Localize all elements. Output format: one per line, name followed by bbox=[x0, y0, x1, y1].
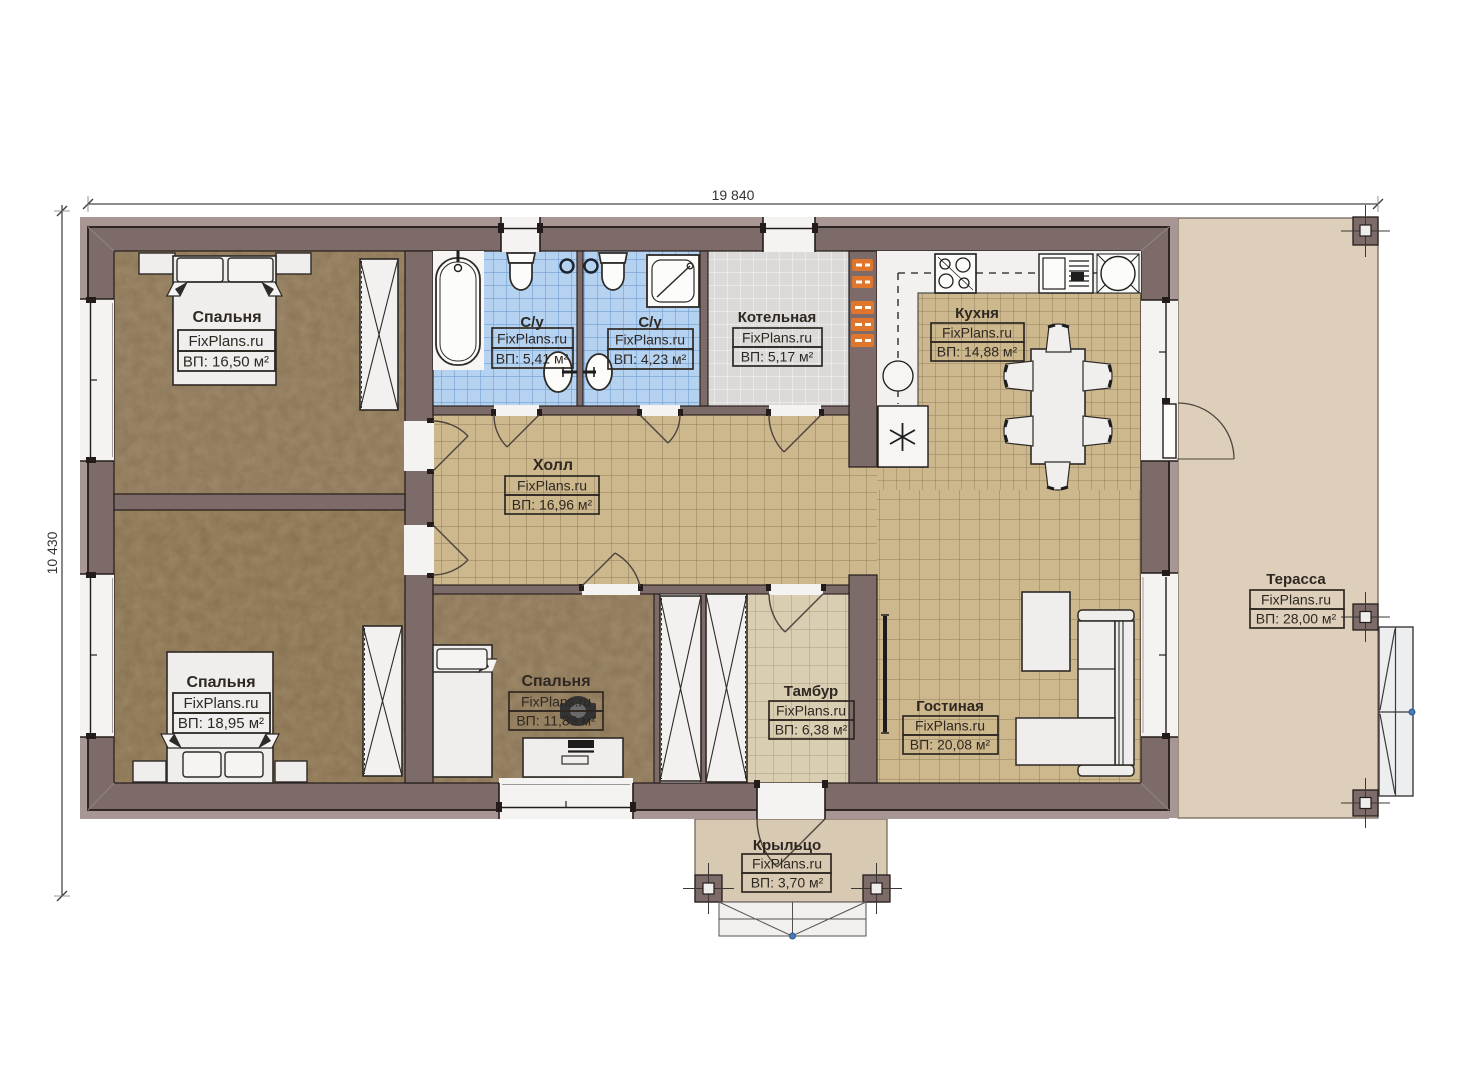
svg-text:Кухня: Кухня bbox=[955, 305, 999, 322]
svg-text:ВП: 16,50 м²: ВП: 16,50 м² bbox=[183, 354, 269, 371]
svg-text:FixPlans.ru: FixPlans.ru bbox=[615, 332, 685, 348]
svg-text:FixPlans.ru: FixPlans.ru bbox=[915, 718, 985, 734]
svg-text:Крыльцо: Крыльцо bbox=[753, 837, 821, 854]
svg-text:FixPlans.ru: FixPlans.ru bbox=[183, 695, 258, 712]
svg-text:Котельная: Котельная bbox=[738, 309, 817, 326]
svg-text:ВП: 6,38 м²: ВП: 6,38 м² bbox=[775, 722, 848, 738]
svg-text:FixPlans.ru: FixPlans.ru bbox=[742, 330, 812, 346]
svg-text:FixPlans.ru: FixPlans.ru bbox=[776, 703, 846, 719]
svg-text:ВП: 18,95 м²: ВП: 18,95 м² bbox=[178, 715, 264, 732]
svg-text:FixPlans.ru: FixPlans.ru bbox=[497, 331, 567, 347]
svg-text:FixPlans.ru: FixPlans.ru bbox=[752, 856, 822, 872]
svg-text:ВП: 5,41 м²: ВП: 5,41 м² bbox=[496, 351, 569, 367]
svg-text:10 430: 10 430 bbox=[44, 531, 60, 574]
svg-text:FixPlans.ru: FixPlans.ru bbox=[1261, 592, 1331, 608]
svg-text:FixPlans.ru: FixPlans.ru bbox=[517, 478, 587, 494]
svg-text:19 840: 19 840 bbox=[712, 187, 755, 203]
svg-text:ВП: 14,88 м²: ВП: 14,88 м² bbox=[937, 344, 1018, 360]
svg-text:Терасса: Терасса bbox=[1266, 571, 1326, 588]
svg-text:ВП: 28,00 м²: ВП: 28,00 м² bbox=[1256, 611, 1337, 627]
svg-text:ВП: 3,70 м²: ВП: 3,70 м² bbox=[751, 875, 824, 891]
svg-text:Спальня: Спальня bbox=[192, 309, 261, 326]
svg-text:FixPlans.ru: FixPlans.ru bbox=[942, 325, 1012, 341]
svg-text:ВП: 5,17 м²: ВП: 5,17 м² bbox=[741, 349, 814, 365]
svg-text:ВП: 16,96 м²: ВП: 16,96 м² bbox=[512, 497, 593, 513]
svg-text:FixPlans.ru: FixPlans.ru bbox=[521, 694, 591, 710]
svg-text:ВП: 20,08 м²: ВП: 20,08 м² bbox=[910, 737, 991, 753]
svg-text:Спальня: Спальня bbox=[186, 674, 255, 691]
svg-text:ВП: 11,89 м²: ВП: 11,89 м² bbox=[516, 713, 596, 729]
svg-text:Гостиная: Гостиная bbox=[916, 698, 984, 715]
svg-text:FixPlans.ru: FixPlans.ru bbox=[188, 333, 263, 350]
svg-text:ВП: 4,23 м²: ВП: 4,23 м² bbox=[614, 351, 687, 367]
svg-text:Холл: Холл bbox=[533, 457, 573, 474]
svg-text:Тамбур: Тамбур bbox=[784, 683, 838, 700]
svg-text:Спальня: Спальня bbox=[521, 673, 590, 690]
